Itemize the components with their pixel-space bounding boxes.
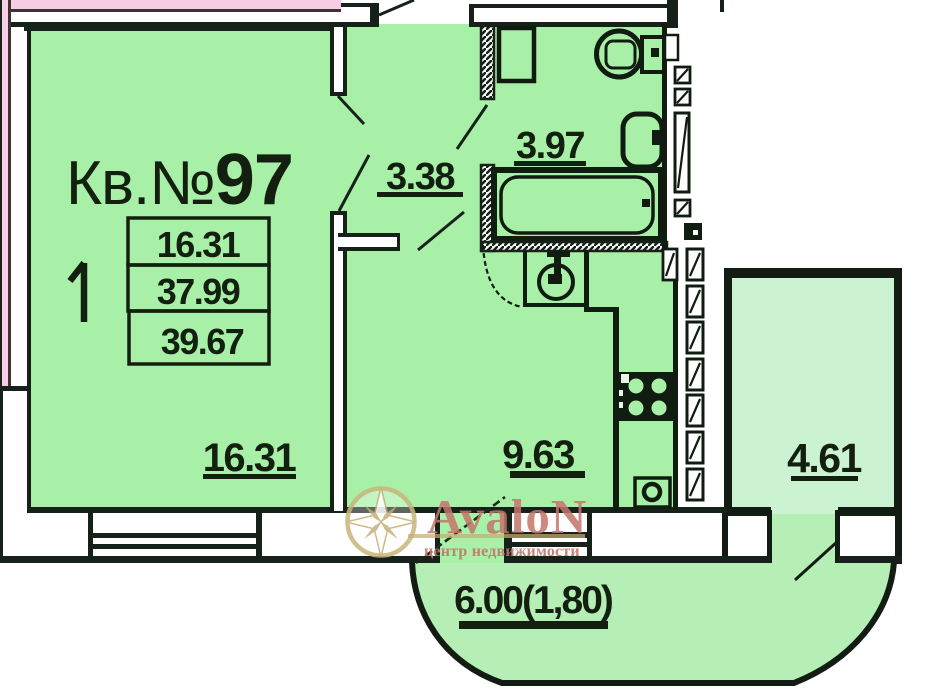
svg-text:AvaloN: AvaloN	[427, 489, 587, 544]
svg-text:6.00(1,80): 6.00(1,80)	[454, 579, 613, 622]
svg-text:9.63: 9.63	[502, 433, 574, 477]
svg-text:16.31: 16.31	[157, 224, 241, 265]
svg-text:3.38: 3.38	[386, 156, 454, 198]
svg-text:Кв.№97: Кв.№97	[66, 140, 293, 220]
svg-text:центр недвижимости: центр недвижимости	[424, 543, 580, 560]
svg-text:39.67: 39.67	[161, 321, 244, 362]
svg-text:37.99: 37.99	[157, 271, 240, 312]
svg-text:3.97: 3.97	[516, 125, 584, 167]
svg-text:16.31: 16.31	[203, 436, 297, 480]
svg-text:4.61: 4.61	[787, 435, 861, 481]
